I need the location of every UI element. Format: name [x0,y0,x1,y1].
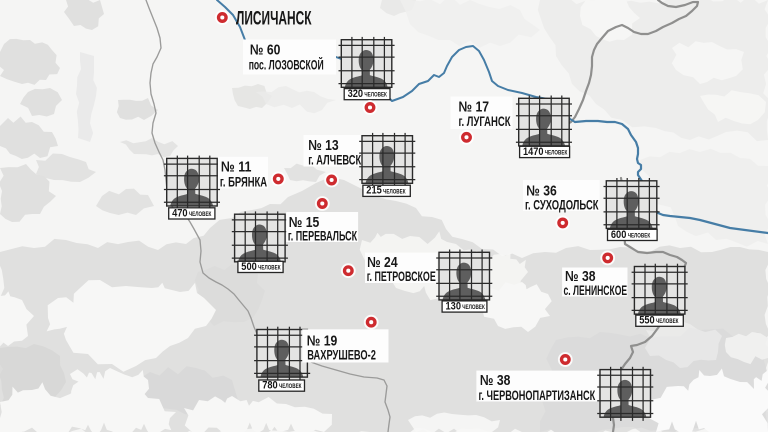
svg-text:г. ПЕТРОВСКОЕ: г. ПЕТРОВСКОЕ [367,269,436,285]
svg-text:ЧЕЛОВЕК: ЧЕЛОВЕК [258,264,281,271]
svg-text:320: 320 [348,88,364,100]
svg-text:г. БРЯНКА: г. БРЯНКА [220,174,267,190]
svg-text:130: 130 [446,300,462,312]
svg-text:ЧЕЛОВЕК: ЧЕЛОВЕК [189,211,212,218]
svg-text:ВАХРУШЕВО-2: ВАХРУШЕВО-2 [307,348,376,364]
svg-text:600: 600 [611,229,627,241]
svg-text:ЧЕЛОВЕК: ЧЕЛОВЕК [545,150,568,157]
svg-text:ЧЕЛОВЕК: ЧЕЛОВЕК [383,188,406,195]
svg-text:№ 13: № 13 [308,138,339,154]
svg-text:г. СУХОДОЛЬСК: г. СУХОДОЛЬСК [525,198,599,214]
svg-text:ЛИСИЧАНСК: ЛИСИЧАНСК [236,7,312,29]
svg-text:ЧЕЛОВЕК: ЧЕЛОВЕК [628,232,651,239]
svg-text:500: 500 [241,261,256,273]
svg-text:пос. ЛОЗОВСКОЙ: пос. ЛОЗОВСКОЙ [249,56,324,74]
svg-text:№ 11: № 11 [221,160,252,176]
svg-text:ЧЕЛОВЕК: ЧЕЛОВЕК [462,304,485,311]
svg-text:г. АЛЧЕВСК: г. АЛЧЕВСК [308,153,361,169]
svg-text:ЧЕЛОВЕК: ЧЕЛОВЕК [279,383,302,390]
svg-text:ЧЕЛОВЕК: ЧЕЛОВЕК [656,318,679,325]
svg-text:1470: 1470 [523,146,544,158]
svg-text:№ 60: № 60 [250,42,281,58]
svg-text:ЧЕЛОВЕК: ЧЕЛОВЕК [364,92,387,99]
svg-text:г. ЧЕРВОНОПАРТИЗАНСК: г. ЧЕРВОНОПАРТИЗАНСК [479,388,596,404]
svg-text:с. ЛЕНИНСКОЕ: с. ЛЕНИНСКОЕ [564,283,628,299]
svg-text:№ 17: № 17 [459,99,490,115]
svg-text:№ 38: № 38 [480,373,511,389]
svg-text:г. ЛУГАНСК: г. ЛУГАНСК [459,114,511,130]
svg-text:г. ПЕРЕВАЛЬСК: г. ПЕРЕВАЛЬСК [288,229,357,245]
svg-text:215: 215 [366,185,382,197]
svg-text:470: 470 [172,207,188,219]
svg-text:780: 780 [262,380,278,392]
svg-text:550: 550 [639,315,655,327]
